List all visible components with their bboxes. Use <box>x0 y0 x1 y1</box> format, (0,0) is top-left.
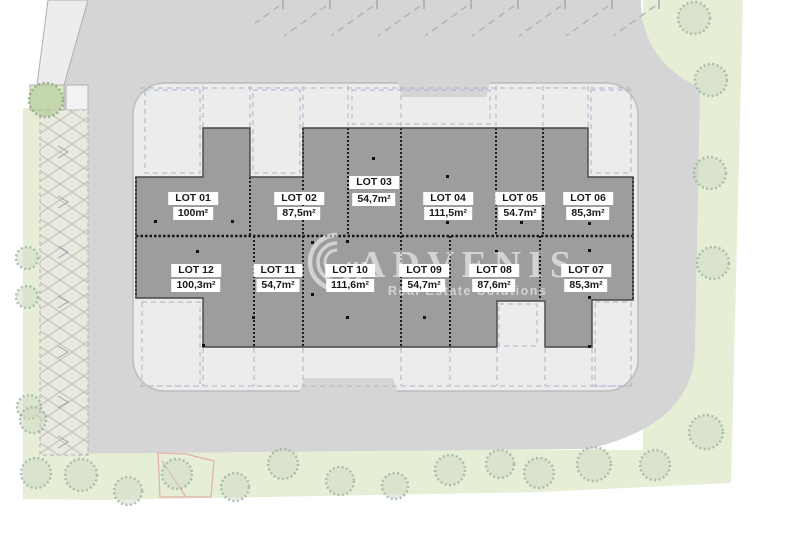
tree-icon <box>486 450 514 478</box>
lot-name: LOT 11 <box>253 264 302 277</box>
tree-icon <box>678 2 710 34</box>
lot-02-label: LOT 02 87,5m² <box>274 192 324 220</box>
lot-area: 111,6m² <box>326 279 374 292</box>
tree-icon <box>65 459 97 491</box>
tree-icon <box>16 247 38 269</box>
lot-area: 54,7m² <box>256 279 299 292</box>
lot-area: 85,3m² <box>564 279 607 292</box>
lot-area: 87,5m² <box>277 207 320 220</box>
lot-area: 54,7m² <box>402 279 445 292</box>
lot-area: 54.7m² <box>498 207 541 220</box>
tree-icon <box>221 473 249 501</box>
lot-name: LOT 09 <box>399 264 449 277</box>
lot-name: LOT 08 <box>469 264 519 277</box>
lot-name: LOT 05 <box>495 192 545 205</box>
lot-name: LOT 04 <box>423 192 473 205</box>
tree-icon <box>20 407 46 433</box>
lot-12-label: LOT 12 100,3m² <box>171 264 221 292</box>
tree-icon <box>524 458 554 488</box>
hatched-strip <box>40 110 88 455</box>
lot-name: LOT 03 <box>349 176 399 189</box>
tree-icon <box>689 415 723 449</box>
lot-11-label: LOT 11 54,7m² <box>253 264 302 292</box>
tree-icon <box>577 447 611 481</box>
lot-area: 100m² <box>173 207 213 220</box>
lot-06-label: LOT 06 85,3m² <box>563 192 613 220</box>
tree-icon <box>435 455 465 485</box>
tree-icon <box>268 449 298 479</box>
tree-icon <box>382 473 408 499</box>
white-square <box>66 85 88 110</box>
lot-area: 85,3m² <box>566 207 609 220</box>
lot-area: 111,5m² <box>424 207 472 220</box>
lot-area: 54,7m² <box>352 193 395 206</box>
tree-icon <box>29 83 63 117</box>
tree-icon <box>640 450 670 480</box>
site-plan: ADVENIS Real Estate Solutions LOT 01 100… <box>0 0 800 547</box>
lot-name: LOT 06 <box>563 192 613 205</box>
building-lots <box>136 128 633 347</box>
tree-icon <box>697 247 729 279</box>
lot-name: LOT 10 <box>325 264 375 277</box>
parking-bay-markings <box>255 0 660 42</box>
lot-name: LOT 12 <box>171 264 221 277</box>
lot-name: LOT 01 <box>168 192 218 205</box>
tree-icon <box>16 286 38 308</box>
lot-09-label: LOT 09 54,7m² <box>399 264 449 292</box>
lot-05-label: LOT 05 54.7m² <box>495 192 545 220</box>
tree-icon <box>694 157 726 189</box>
tree-icon <box>695 64 727 96</box>
tree-icon <box>326 467 354 495</box>
lot-01-label: LOT 01 100m² <box>168 192 218 220</box>
lot-area: 100,3m² <box>171 279 220 292</box>
lot-04-label: LOT 04 111,5m² <box>423 192 473 220</box>
road-notch-bottom <box>300 378 397 392</box>
lot-03-label: LOT 03 54,7m² <box>349 176 399 206</box>
lot-07-label: LOT 07 85,3m² <box>561 264 611 292</box>
tree-icon <box>114 477 142 505</box>
tree-icon <box>21 458 51 488</box>
lot-08-label: LOT 08 87,6m² <box>469 264 519 292</box>
lot-name: LOT 07 <box>561 264 611 277</box>
lot-area: 87,6m² <box>472 279 515 292</box>
watermark-brand: ADVENIS <box>358 244 578 286</box>
lot-10-label: LOT 10 111,6m² <box>325 264 375 292</box>
tree-icon <box>162 459 192 489</box>
lot-name: LOT 02 <box>274 192 324 205</box>
